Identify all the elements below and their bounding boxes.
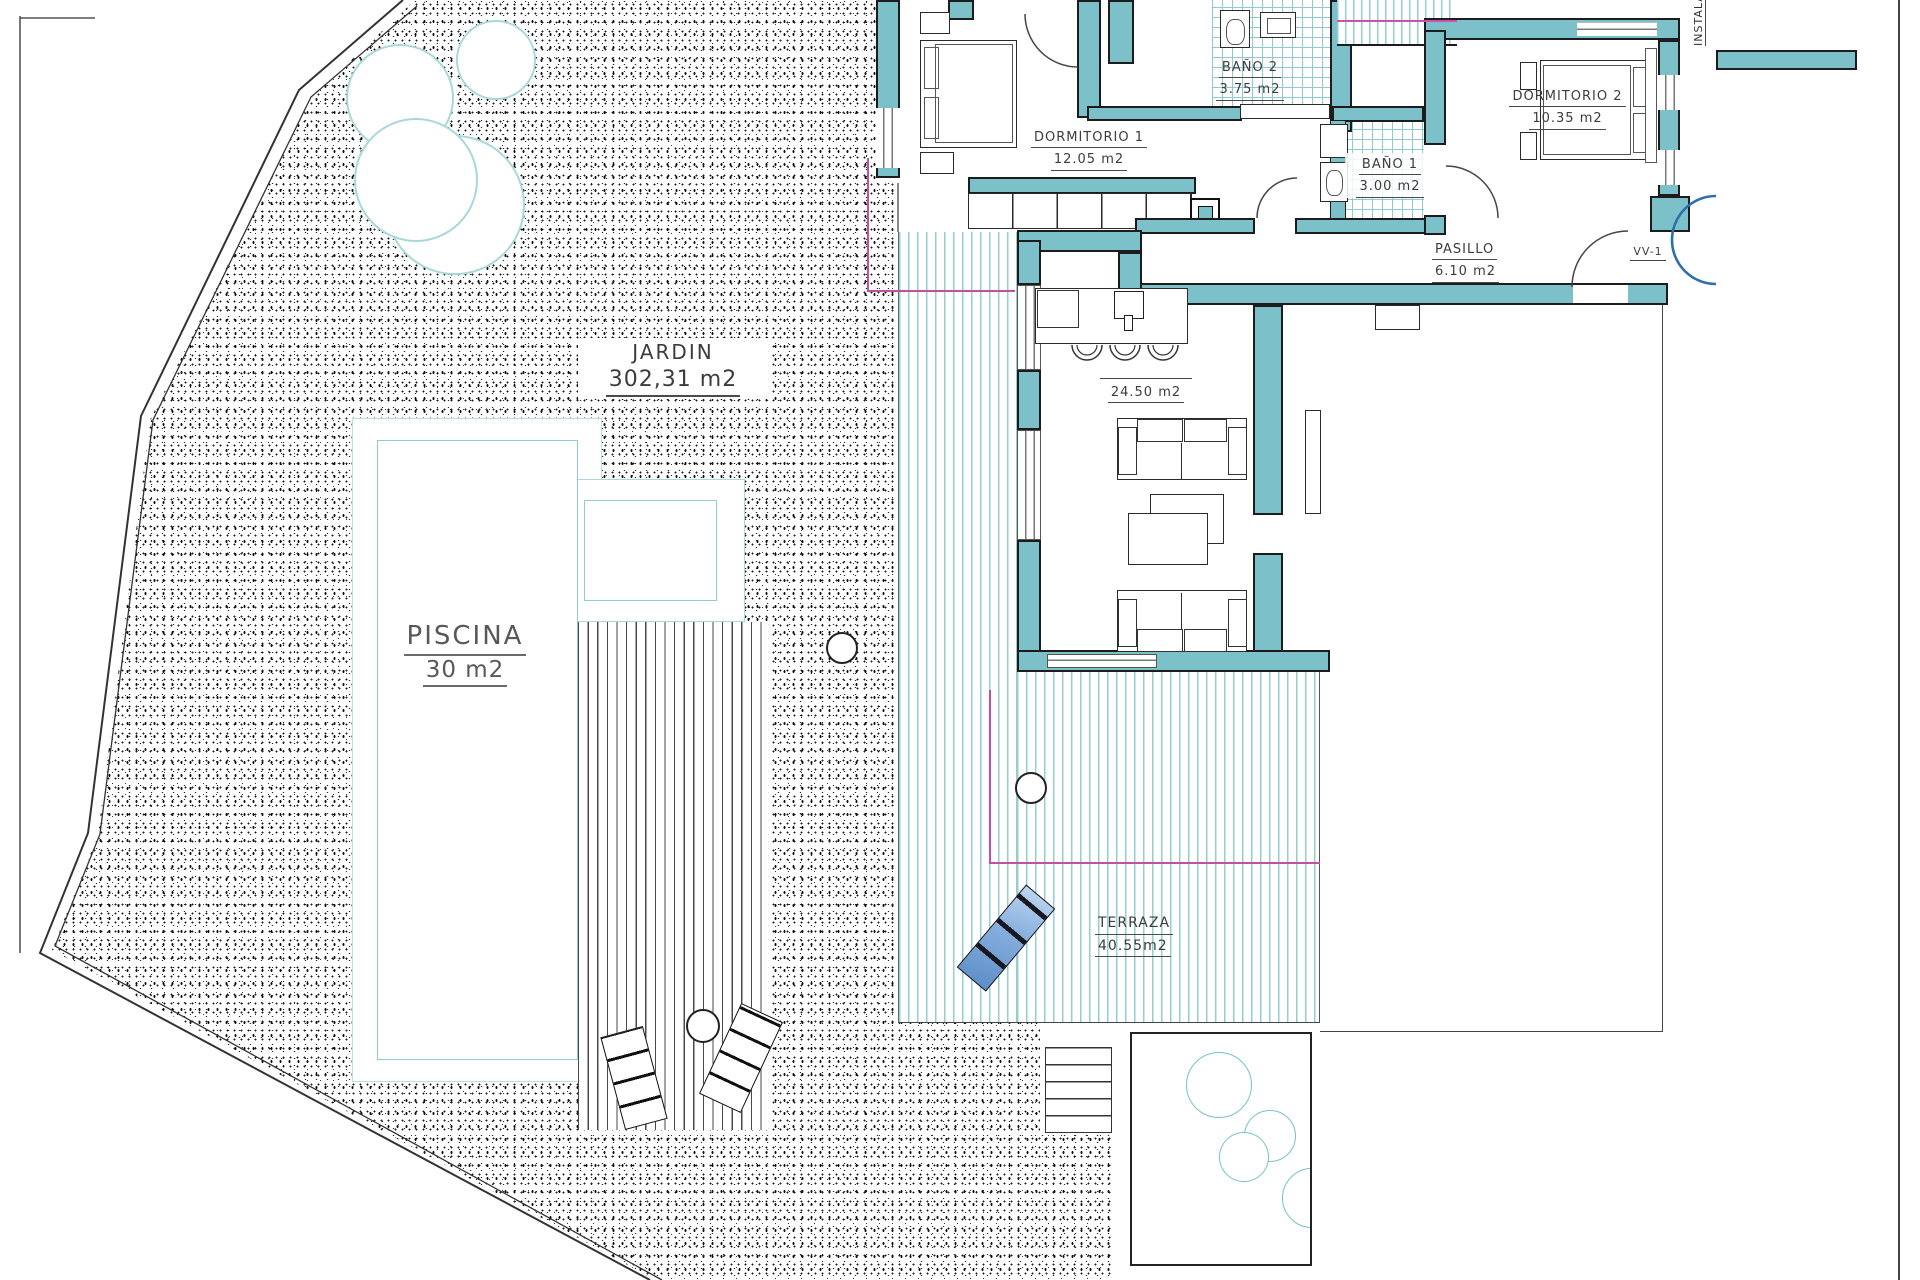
- door-arc-laundry: [1257, 178, 1297, 218]
- dormitorio1-name: DORMITORIO 1: [1031, 130, 1147, 148]
- pasillo-name: PASILLO: [1432, 242, 1497, 260]
- bano1-name: BAÑO 1: [1359, 157, 1421, 175]
- door-arc-dorm1: [1025, 14, 1078, 67]
- door-arc-entrance: [1572, 231, 1628, 287]
- linework-overlay: [0, 0, 1920, 1280]
- label-pasillo: PASILLO 6.10 m2: [1432, 238, 1522, 283]
- label-instalaciones: INSTALA: [1692, 0, 1706, 46]
- stool-arc: [1072, 345, 1102, 360]
- dormitorio2-area: 10.35 m2: [1529, 111, 1605, 129]
- plot-boundary-inner: [55, 6, 662, 1280]
- label-terraza: TERRAZA 40.55m2: [1095, 912, 1205, 957]
- label-vv1: VV-1: [1626, 240, 1670, 261]
- dormitorio1-area: 12.05 m2: [1051, 152, 1127, 170]
- stool-arc-inner: [1077, 345, 1097, 355]
- entrance-swing-blue-arc: [1672, 196, 1716, 284]
- label-bano2: BAÑO 2 3.75 m2: [1205, 56, 1295, 101]
- door-arc-dorm2: [1446, 166, 1498, 218]
- label-dormitorio2: DORMITORIO 2 10.35 m2: [1490, 85, 1645, 130]
- terrace-roof-line-magenta: [990, 690, 1320, 863]
- jardin-area: 302,31 m2: [606, 366, 740, 397]
- label-salon-area: 24.50 m2: [1100, 378, 1192, 403]
- label-dormitorio1: DORMITORIO 1 12.05 m2: [1014, 126, 1164, 171]
- piscina-name: PISCINA: [404, 620, 527, 656]
- stool-arc-inner: [1115, 345, 1135, 355]
- label-bano1: BAÑO 1 3.00 m2: [1345, 153, 1435, 198]
- bano1-area: 3.00 m2: [1356, 179, 1423, 197]
- bano2-area: 3.75 m2: [1216, 82, 1283, 100]
- piscina-area: 30 m2: [423, 656, 508, 688]
- bano2-name: BAÑO 2: [1219, 60, 1281, 78]
- label-piscina: PISCINA 30 m2: [370, 620, 560, 687]
- pasillo-area: 6.10 m2: [1432, 264, 1499, 282]
- terraza-area: 40.55m2: [1095, 938, 1171, 958]
- salon-area: 24.50 m2: [1108, 385, 1184, 403]
- stool-arc: [1110, 345, 1140, 360]
- stool-arc: [1148, 345, 1178, 360]
- floor-plan-canvas: JARDIN 302,31 m2 PISCINA 30 m2 TERRAZA 4…: [0, 0, 1920, 1280]
- dormitorio2-name: DORMITORIO 2: [1509, 89, 1625, 107]
- terraza-name: TERRAZA: [1095, 915, 1173, 935]
- jardin-name: JARDIN: [629, 340, 716, 366]
- label-jardin: JARDIN 302,31 m2: [578, 338, 768, 399]
- vv1-name: VV-1: [1630, 245, 1665, 261]
- porch-roof-line-magenta: [868, 158, 1015, 291]
- stool-arc-inner: [1153, 345, 1173, 355]
